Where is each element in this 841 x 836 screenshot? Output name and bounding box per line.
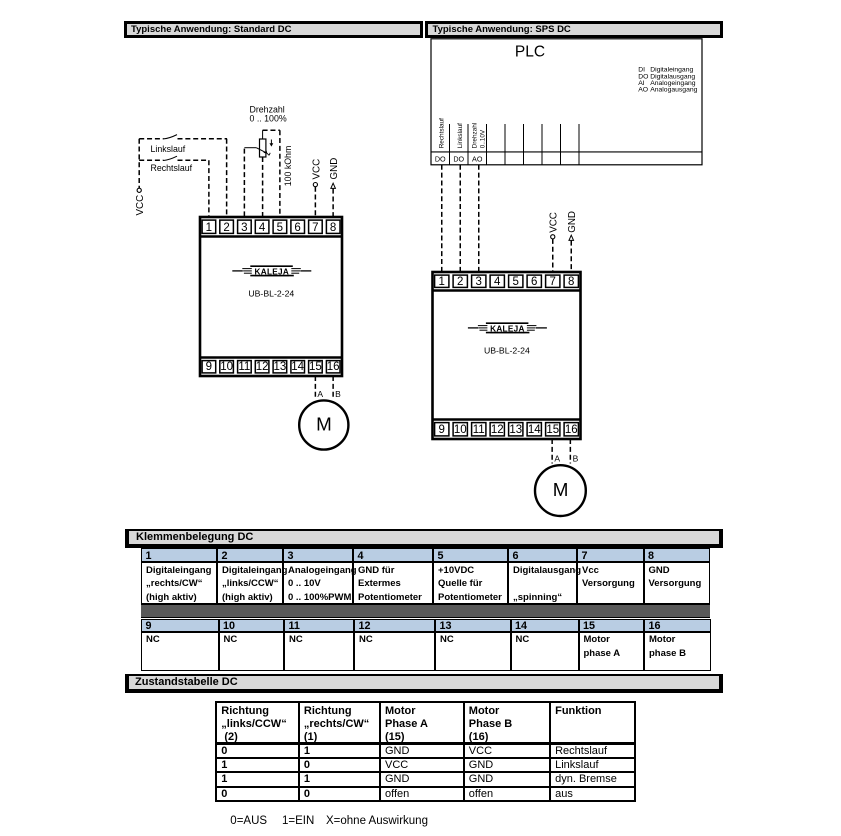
svg-text:Linkslauf: Linkslauf	[151, 144, 186, 154]
svg-text:UB-BL-2-24: UB-BL-2-24	[248, 289, 294, 299]
svg-text:B: B	[335, 389, 341, 399]
svg-text:15: 15	[309, 361, 322, 373]
svg-text:GND: GND	[567, 211, 578, 233]
svg-text:Drehzahl: Drehzahl	[472, 123, 479, 149]
svg-text:8: 8	[330, 222, 336, 234]
svg-text:7: 7	[550, 276, 556, 288]
svg-text:5: 5	[277, 222, 283, 234]
svg-text:16: 16	[327, 361, 340, 373]
svg-text:DO: DO	[453, 154, 464, 163]
svg-text:5: 5	[513, 276, 519, 288]
svg-text:2: 2	[223, 222, 229, 234]
svg-text:14: 14	[528, 424, 541, 436]
svg-text:M: M	[316, 414, 332, 435]
svg-text:6: 6	[531, 276, 537, 288]
svg-text:AO: AO	[638, 87, 648, 94]
svg-text:10: 10	[220, 361, 233, 373]
svg-text:UB-BL-2-24: UB-BL-2-24	[484, 346, 530, 356]
svg-text:100 kOhm: 100 kOhm	[283, 146, 293, 187]
svg-text:11: 11	[473, 424, 485, 436]
svg-text:1: 1	[206, 222, 212, 234]
svg-text:VCC: VCC	[311, 159, 322, 180]
svg-text:15: 15	[546, 424, 559, 436]
svg-text:1: 1	[439, 276, 445, 288]
svg-text:16: 16	[565, 424, 578, 436]
svg-text:M: M	[553, 479, 569, 500]
svg-text:3: 3	[241, 222, 247, 234]
svg-text:14: 14	[291, 361, 304, 373]
svg-text:11: 11	[238, 361, 250, 373]
svg-text:4: 4	[494, 276, 501, 288]
svg-text:AO: AO	[472, 154, 483, 163]
svg-text:KALEJA: KALEJA	[255, 267, 290, 276]
svg-text:2: 2	[457, 276, 463, 288]
svg-text:A: A	[317, 389, 323, 399]
svg-text:9: 9	[206, 361, 212, 373]
svg-text:3: 3	[476, 276, 482, 288]
svg-text:12: 12	[491, 424, 504, 436]
svg-text:PLC: PLC	[515, 44, 545, 61]
svg-text:6: 6	[294, 222, 300, 234]
svg-text:Rechtslauf: Rechtslauf	[151, 163, 193, 173]
svg-text:9: 9	[439, 424, 445, 436]
svg-text:A: A	[554, 454, 560, 464]
svg-text:7: 7	[312, 222, 318, 234]
svg-text:12: 12	[256, 361, 269, 373]
svg-text:VCC: VCC	[135, 195, 146, 216]
svg-text:KALEJA: KALEJA	[490, 324, 525, 333]
svg-text:Rechtslauf: Rechtslauf	[439, 118, 446, 148]
svg-text:13: 13	[509, 424, 522, 436]
svg-text:10: 10	[454, 424, 467, 436]
svg-text:DO: DO	[435, 154, 446, 163]
svg-text:8: 8	[568, 276, 574, 288]
svg-text:GND: GND	[329, 158, 340, 180]
svg-text:4: 4	[259, 222, 266, 234]
svg-text:B: B	[573, 454, 579, 464]
svg-text:0..10V: 0..10V	[479, 129, 486, 148]
svg-text:13: 13	[273, 361, 286, 373]
svg-text:Linkslauf: Linkslauf	[457, 123, 464, 148]
svg-text:0 .. 100%: 0 .. 100%	[250, 113, 287, 123]
svg-text:VCC: VCC	[549, 212, 560, 233]
svg-text:Analogausgang: Analogausgang	[650, 87, 697, 94]
